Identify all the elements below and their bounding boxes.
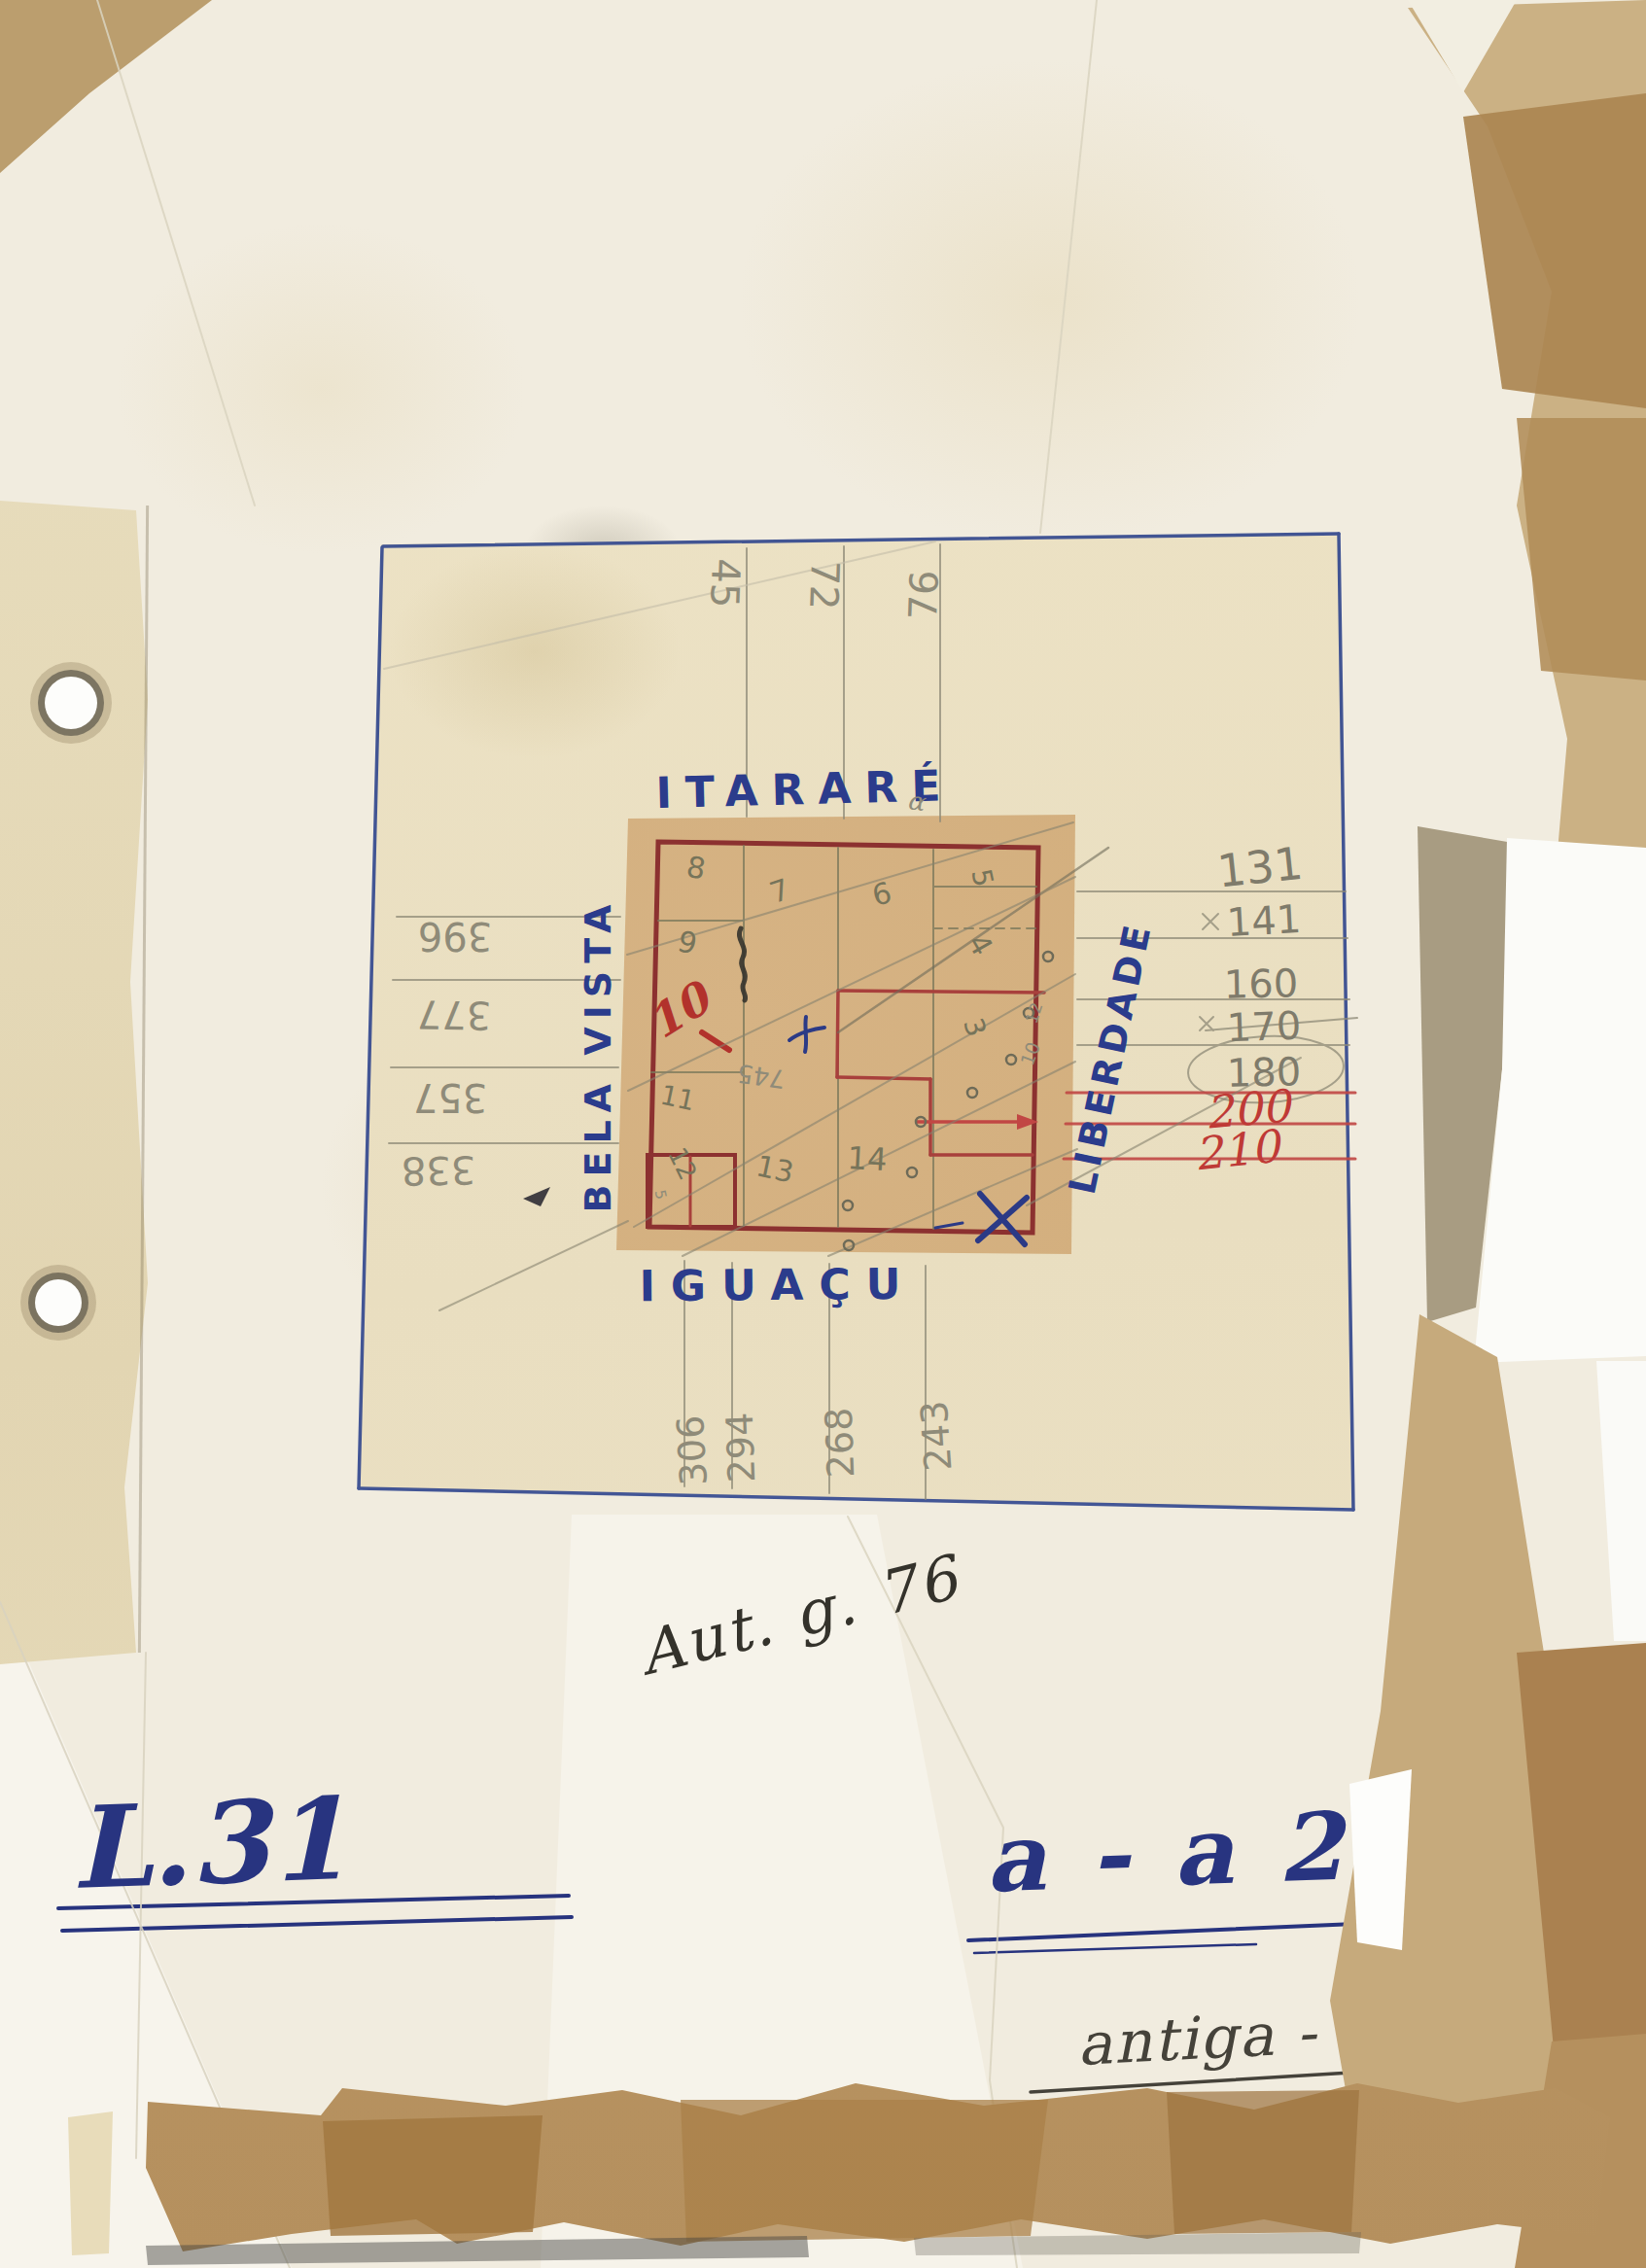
- plus-mark: [789, 1017, 824, 1052]
- dimension-number: 338: [401, 1150, 475, 1190]
- contour-lines: [384, 541, 1301, 1310]
- dimension-number: 131: [1215, 841, 1305, 894]
- alpha-mark: α: [905, 787, 926, 815]
- lot-number: 13: [753, 1151, 796, 1187]
- dimension-number: 76: [903, 570, 944, 620]
- street-name-left: BELA VISTA: [579, 896, 616, 1212]
- x-mark: [978, 1194, 1027, 1244]
- dimension-number: 243: [916, 1399, 958, 1472]
- code-left: L.31: [69, 1782, 348, 1904]
- street-name-bottom: IGUAÇU: [639, 1263, 916, 1308]
- ink-marks: [789, 1017, 1027, 1244]
- dimension-number-struck: 170: [1226, 1006, 1302, 1048]
- dimension-number: 141: [1226, 899, 1302, 942]
- dimension-number: 45: [705, 558, 746, 609]
- code-right: a - a 2: [984, 1800, 1349, 1906]
- dimension-number: 306: [672, 1414, 713, 1486]
- dimension-number: 294: [721, 1412, 761, 1483]
- dimension-number: 357: [413, 1078, 487, 1117]
- dimension-number: 268: [821, 1407, 860, 1479]
- lot-number: 14: [847, 1142, 888, 1175]
- dimension-number: 160: [1223, 963, 1298, 1003]
- dimension-number: 72: [804, 560, 845, 611]
- pencil-grid: [389, 544, 1357, 1499]
- scanned-archive-page: ITARARÉ IGUAÇU BELA VISTA LIBERDADE 45 7…: [0, 0, 1646, 2268]
- small-arrow-mark: [523, 1187, 550, 1206]
- dimension-number: 377: [416, 994, 491, 1034]
- lot-number: 11: [658, 1082, 698, 1116]
- dimension-number: 396: [418, 917, 492, 956]
- depth-dimension: 745: [736, 1061, 788, 1093]
- dimension-number-red: 210: [1192, 1124, 1281, 1177]
